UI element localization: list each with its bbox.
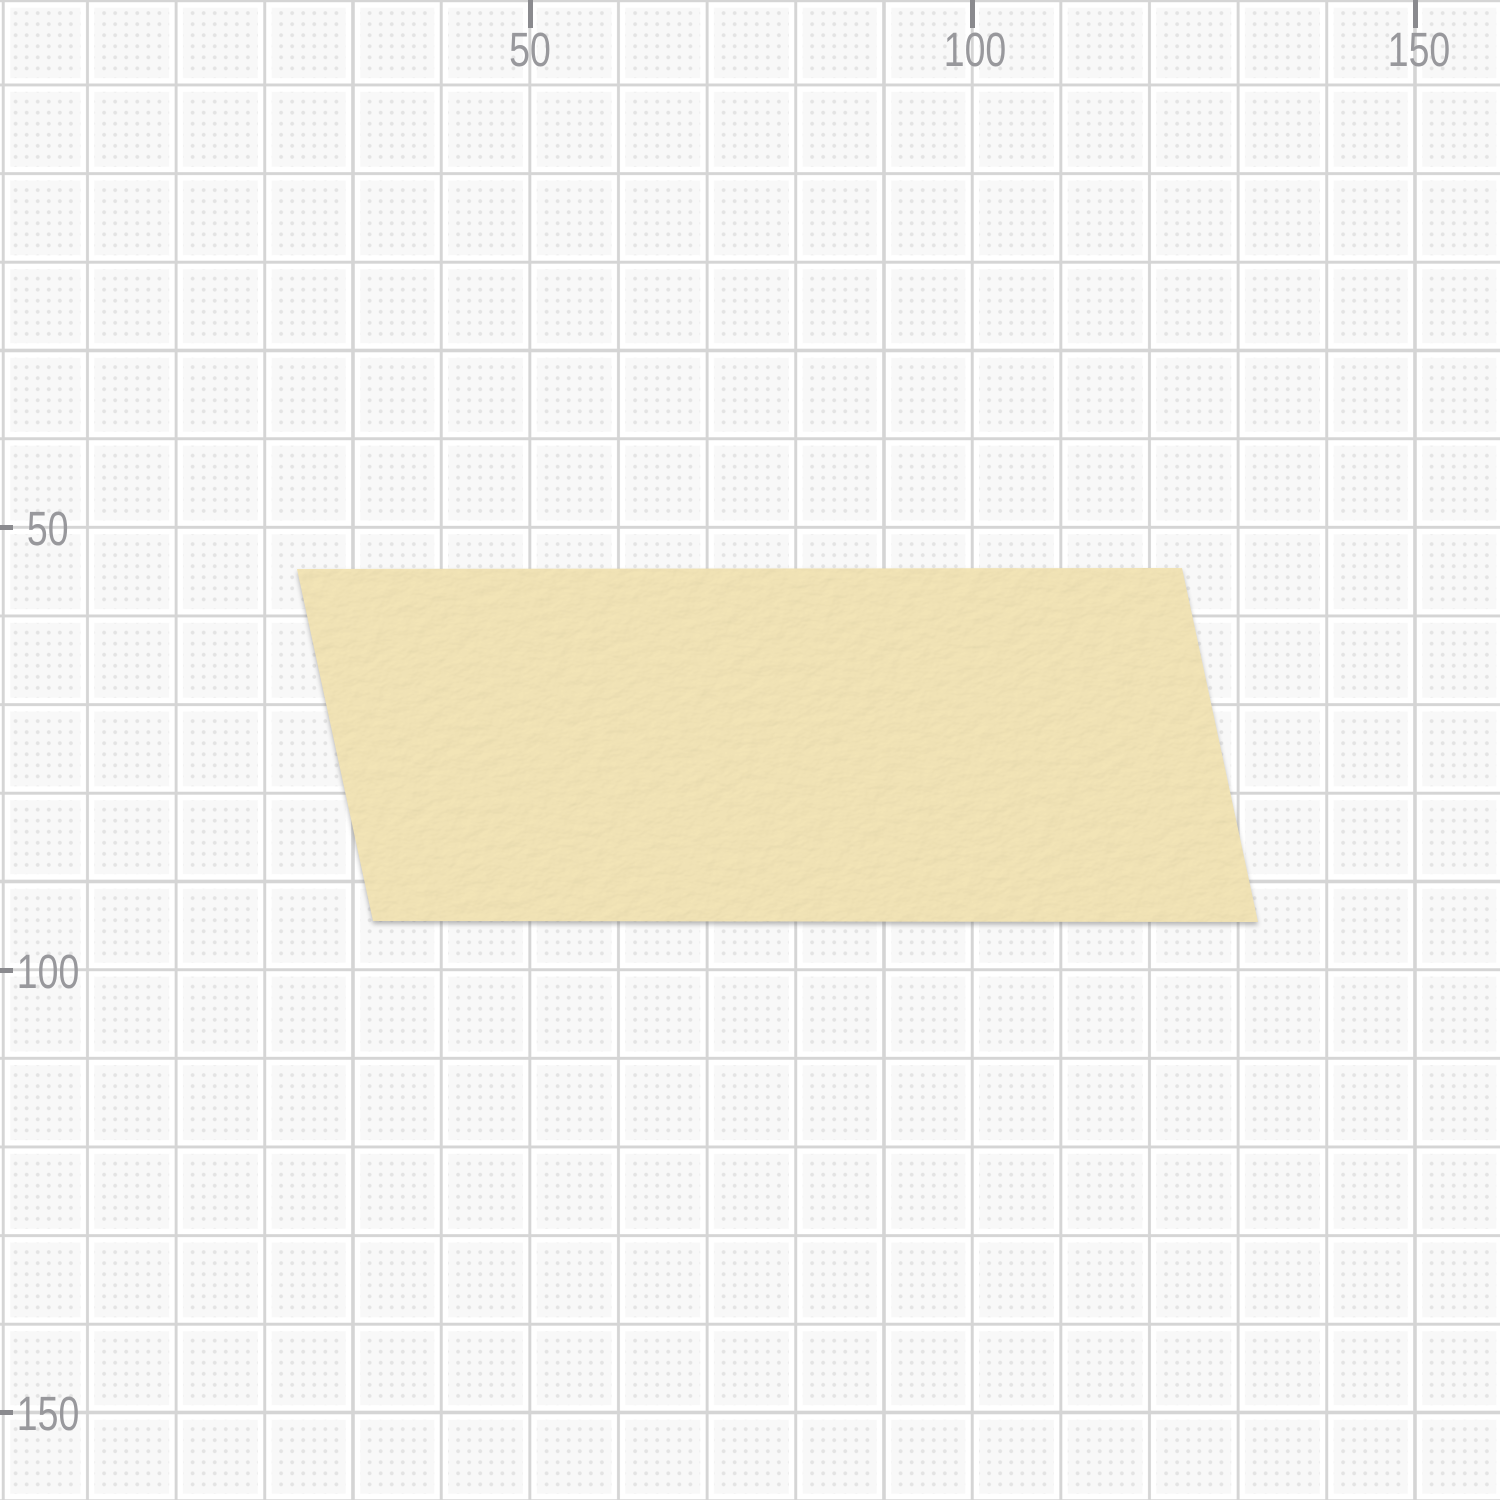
ruler-label-left-50: 50 <box>0 506 96 554</box>
ruler-label-text: 50 <box>27 506 69 554</box>
ruler-label-left-150: 150 <box>0 1391 96 1439</box>
ruler-label-top-150: 150 <box>1379 27 1459 75</box>
grid-canvas[interactable]: 50 100 150 50 100 150 <box>0 0 1500 1500</box>
tape-layer <box>0 0 1500 1500</box>
ruler-label-left-100: 100 <box>0 949 96 997</box>
ruler-label-text: 150 <box>17 1391 79 1439</box>
ruler-label-text: 100 <box>944 27 1006 75</box>
ruler-label-text: 100 <box>17 949 79 997</box>
ruler-label-top-50: 50 <box>503 27 556 75</box>
ruler-label-text: 50 <box>509 27 551 75</box>
tape-shape[interactable] <box>297 568 1258 922</box>
ruler-label-text: 150 <box>1388 27 1450 75</box>
ruler-label-top-100: 100 <box>935 27 1015 75</box>
